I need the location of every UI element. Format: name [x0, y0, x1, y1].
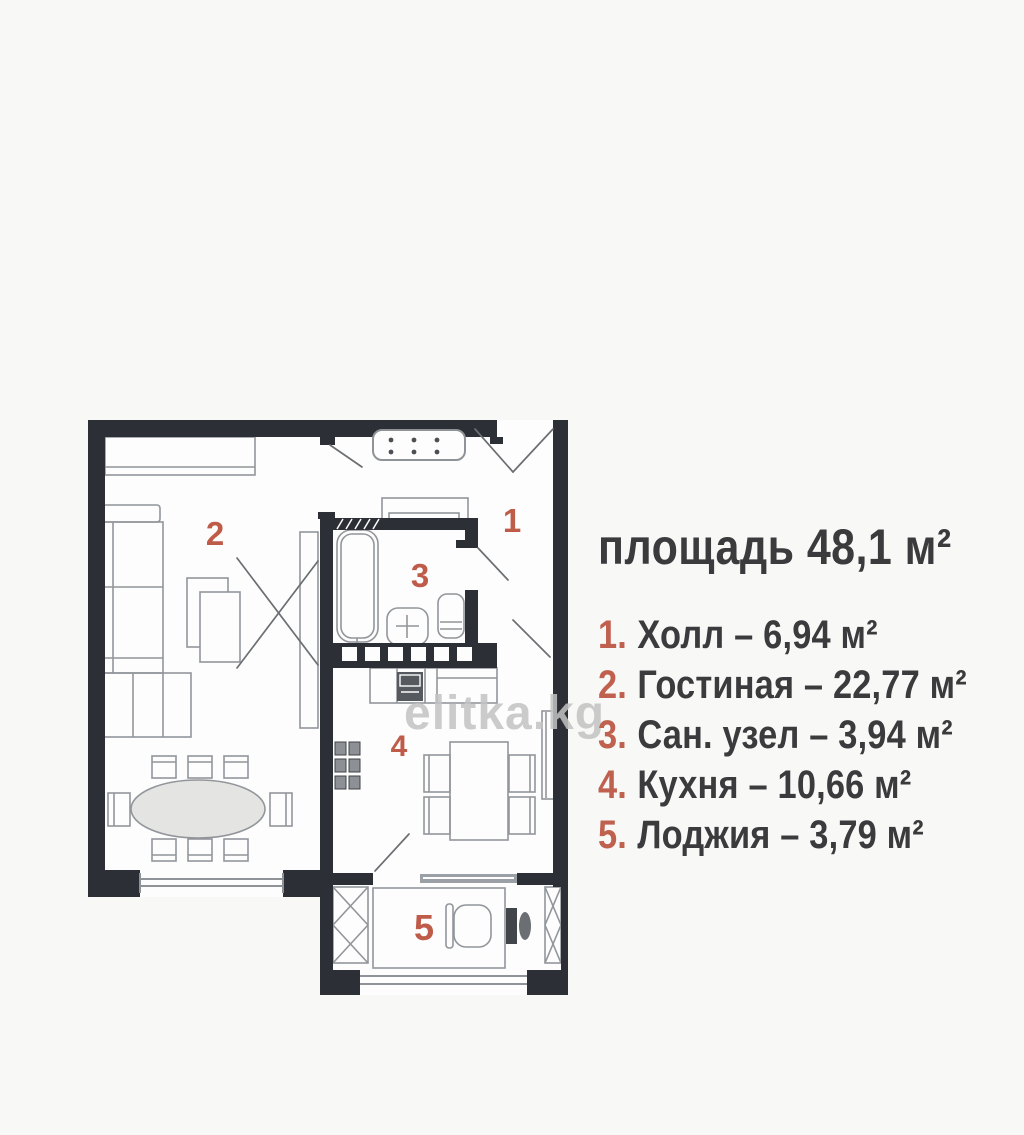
- legend-item-number: 1.: [598, 613, 627, 657]
- legend-item-living-room: 2.Гостиная – 22,77 м²: [598, 660, 967, 710]
- room-number-5: 5: [414, 907, 434, 948]
- legend-item-hall: 1.Холл – 6,94 м²: [598, 610, 967, 660]
- vent-block: [373, 430, 465, 460]
- legend-items: 1.Холл – 6,94 м² 2.Гостиная – 22,77 м² 3…: [598, 610, 967, 860]
- floor-plan: 1 2 3 4 5: [85, 415, 575, 1000]
- legend-item-number: 5.: [598, 813, 627, 857]
- loggia-desk: [373, 888, 505, 968]
- total-area-label: площадь 48,1 м²: [598, 520, 967, 574]
- room-number-4: 4: [391, 730, 408, 763]
- legend-item-label: Кухня – 10,66 м²: [637, 763, 911, 807]
- room-number-2: 2: [206, 515, 224, 552]
- legend-item-number: 3.: [598, 713, 627, 757]
- legend-item-label: Лоджия – 3,79 м²: [637, 813, 924, 857]
- legend-item-bathroom: 3.Сан. узел – 3,94 м²: [598, 710, 967, 760]
- balcony-glass-door: [420, 874, 517, 883]
- legend-item-label: Гостиная – 22,77 м²: [637, 663, 967, 707]
- kitchen-counter: [370, 668, 497, 703]
- floor-plan-page: 1 2 3 4 5 elitka.kg площадь 48,1 м² 1.Хо…: [0, 0, 1024, 1135]
- legend: площадь 48,1 м² 1.Холл – 6,94 м² 2.Гости…: [598, 520, 967, 860]
- kitchen-table: [450, 742, 508, 840]
- legend-item-label: Сан. узел – 3,94 м²: [637, 713, 953, 757]
- legend-item-label: Холл – 6,94 м²: [637, 613, 877, 657]
- legend-item-number: 4.: [598, 763, 627, 807]
- legend-item-number: 2.: [598, 663, 627, 707]
- legend-item-loggia: 5.Лоджия – 3,79 м²: [598, 810, 967, 860]
- room-number-1: 1: [503, 502, 521, 539]
- legend-item-kitchen: 4.Кухня – 10,66 м²: [598, 760, 967, 810]
- room-number-3: 3: [411, 557, 429, 594]
